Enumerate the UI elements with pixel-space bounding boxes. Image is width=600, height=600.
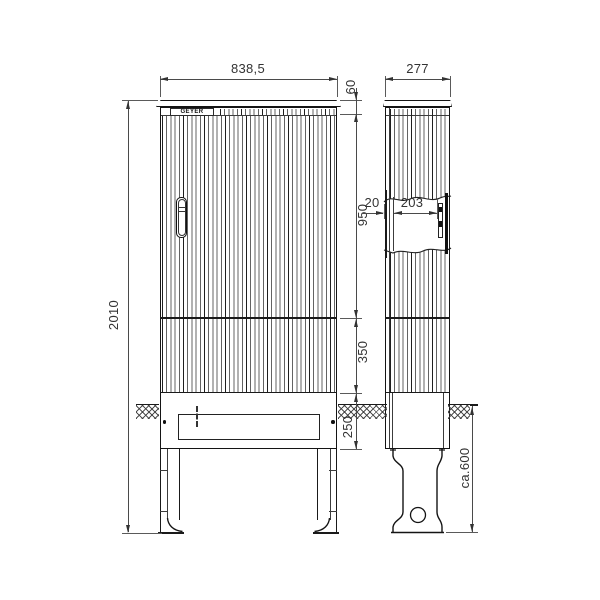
door-handle-line-1 [178,207,185,208]
arrow [354,310,358,318]
arrow [329,77,337,81]
ext-chain-mid [340,318,362,319]
front-roof [156,100,341,107]
arrow [429,211,437,215]
dim-label-front-width: 838,5 [218,62,278,76]
front-left-leg-tick-1 [160,470,168,471]
side-handle-block-1 [439,207,442,212]
side-mid-division-line [385,317,450,319]
side-handle-profile [438,203,443,238]
arrow [126,101,130,109]
front-left-leg-outer [160,449,161,533]
side-break-left-inner [389,193,390,255]
technical-drawing-cabinet: GEYER [0,0,600,600]
ground-hatch-left [136,404,159,419]
arrow [470,407,474,415]
dim-line-side-depth [385,79,450,80]
arrow [376,211,384,215]
front-base-top-line [160,392,337,393]
dim-line-underground [472,406,473,532]
side-handle-block-2 [439,221,442,227]
dim-label-base-height: 250 [341,407,355,447]
side-leg [390,448,448,536]
brand-logo-text: GEYER [180,109,203,115]
arrow [385,77,393,81]
front-left-leg-mid [167,449,168,520]
arrow [126,525,130,533]
door-handle-inner [178,199,186,236]
base-vent-mark [196,406,198,427]
arrow [470,524,474,532]
ext-total-bottom [122,533,162,534]
brand-logo-plate: GEYER [170,108,214,116]
dim-label-side-depth: 277 [395,62,440,76]
base-opening [178,414,320,440]
front-right-leg-inner [317,449,318,520]
side-base-inner-right [443,393,444,448]
dim-label-mid-height: 350 [356,332,370,372]
arrow [354,114,358,122]
base-screw-right [331,420,335,424]
dim-line-front-width [160,79,337,80]
dim-label-door-thickness: 20 [357,196,387,210]
side-roof [383,100,452,107]
ext-chain-basebottom [340,449,362,450]
arrow [354,319,358,327]
ext-inner-depth-right [437,199,438,219]
arrow [354,385,358,393]
dim-label-top-height: 60 [344,67,358,107]
side-base-inner-left [392,393,393,448]
arrow [394,211,402,215]
door-handle-line-2 [178,211,185,212]
front-right-leg-tick-2 [329,511,337,512]
front-right-leg-tick-1 [329,470,337,471]
front-door-ribs [162,116,336,392]
dim-line-total-height [128,101,129,532]
front-left-leg-inner [179,449,180,520]
front-left-leg-tick-2 [160,511,168,512]
dim-label-total-height: 2010 [107,295,121,335]
side-break-right-edge [449,190,451,258]
arrow [354,394,358,402]
ground-hatch-right [448,404,470,419]
dim-label-underground: ca.600 [458,443,472,493]
side-base-top-line [386,392,449,393]
front-mid-division-line [160,317,337,319]
arrow [160,77,168,81]
base-screw-left [163,420,167,424]
arrow [442,77,450,81]
ext-chain-strip [340,114,362,115]
front-right-leg-bottom [313,532,339,534]
front-right-leg-outer [336,449,337,533]
dim-label-inner-depth: 203 [392,196,432,210]
ext-chain-basetop [340,393,362,394]
front-right-leg-mid [330,449,331,520]
door-handle [176,197,187,238]
ext-underground-bottom [446,532,478,533]
